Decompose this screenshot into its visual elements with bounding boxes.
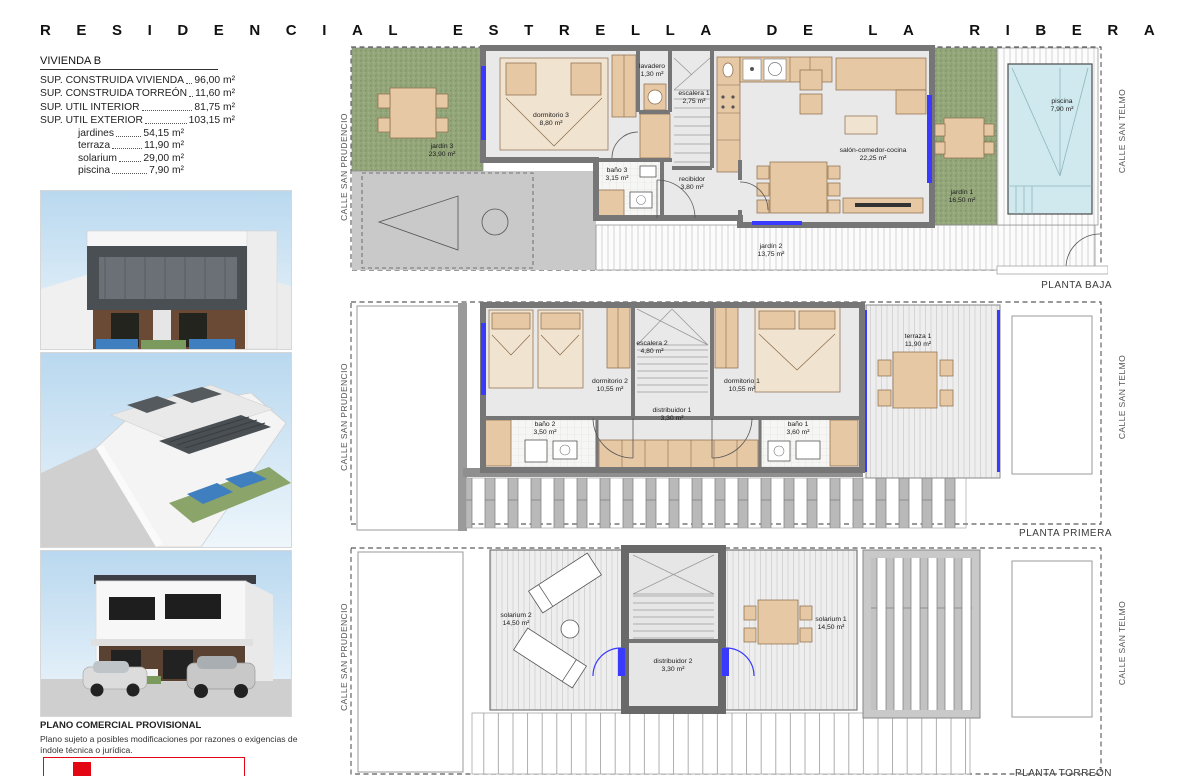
room-label-terraza-1: terraza 111,90 m² <box>905 333 932 348</box>
plan-title-primera: PLANTA PRIMERA <box>982 528 1112 539</box>
room-label-dormitorio-2: dormitorio 210,55 m² <box>592 378 628 393</box>
svg-text:16,50 m²: 16,50 m² <box>949 197 977 204</box>
plan-title-baja: PLANTA BAJA <box>982 280 1112 291</box>
svg-text:14,50 m²: 14,50 m² <box>503 620 531 627</box>
svg-text:escalera 1: escalera 1 <box>678 90 710 97</box>
room-label-solarium-2: solarium 214,50 m² <box>500 612 532 627</box>
street-label-san-prudencio-baja: CALLE SAN PRUDENCIO <box>339 107 349 227</box>
svg-text:jardín 1: jardín 1 <box>950 189 974 196</box>
svg-text:11,90 m²: 11,90 m² <box>905 341 932 348</box>
svg-text:dormitorio 3: dormitorio 3 <box>533 112 569 119</box>
render-rear-facade <box>40 550 292 717</box>
spec-row: piscina7,90 m² <box>78 164 184 177</box>
svg-text:baño 3: baño 3 <box>607 167 628 174</box>
street-label-san-telmo-primera: CALLE SAN TELMO <box>1117 337 1127 457</box>
svg-text:3,15 m²: 3,15 m² <box>605 175 629 182</box>
render-aerial-view <box>40 352 292 548</box>
svg-text:13,75 m²: 13,75 m² <box>758 251 786 258</box>
svg-text:10,55 m²: 10,55 m² <box>729 386 757 393</box>
svg-text:distribuidor 1: distribuidor 1 <box>653 407 692 414</box>
svg-text:3,80 m²: 3,80 m² <box>680 184 704 191</box>
svg-text:8,80 m²: 8,80 m² <box>539 120 563 127</box>
room-label-jardin-3: jardín 323,90 m² <box>429 143 457 158</box>
svg-text:solarium 2: solarium 2 <box>500 612 532 619</box>
plan-sheet: RESIDENCIAL ESTRELLA DE LA RIBERA VIVIEN… <box>0 0 1200 776</box>
room-label-piscina: piscina7,90 m² <box>1050 98 1074 113</box>
room-label-jardin-1: jardín 116,50 m² <box>949 189 977 204</box>
svg-text:4,80 m²: 4,80 m² <box>640 348 664 355</box>
room-label-jardin-2: jardín 213,75 m² <box>758 243 786 258</box>
spec-row: SUP. CONSTRUIDA VIVIENDA96,00 m² <box>40 72 235 86</box>
room-label-dormitorio-1: dormitorio 110,55 m² <box>724 378 760 393</box>
street-label-san-prudencio-primera: CALLE SAN PRUDENCIO <box>339 357 349 477</box>
plan-torreon-drawing: solarium 214,50 m² solarium 114,50 m² di… <box>348 545 1108 776</box>
svg-text:escalera 2: escalera 2 <box>636 340 668 347</box>
developer-logo-mark <box>73 762 91 776</box>
svg-text:baño 2: baño 2 <box>535 421 556 428</box>
svg-text:23,90 m²: 23,90 m² <box>429 151 457 158</box>
developer-logo-box <box>43 757 245 776</box>
render-front-facade <box>40 190 292 350</box>
spec-row: jardines54,15 m² <box>78 126 184 139</box>
svg-text:dormitorio 2: dormitorio 2 <box>592 378 628 385</box>
svg-text:3,60 m²: 3,60 m² <box>786 429 810 436</box>
room-label-escalera-1: escalera 12,75 m² <box>678 90 710 105</box>
footer-title: PLANO COMERCIAL PROVISIONAL <box>40 720 201 731</box>
svg-text:lavadero: lavadero <box>639 63 665 70</box>
room-label-escalera-2: escalera 24,80 m² <box>636 340 668 355</box>
room-label-bano-3: baño 33,15 m² <box>605 167 629 182</box>
spec-row: solarium29,00 m² <box>78 151 184 164</box>
footer-note-line2: índole técnica o jurídica. <box>40 745 133 755</box>
svg-text:3,30 m²: 3,30 m² <box>661 666 685 673</box>
street-label-san-telmo-baja: CALLE SAN TELMO <box>1117 71 1127 191</box>
svg-text:3,30 m²: 3,30 m² <box>660 415 684 422</box>
room-label-bano-2: baño 23,50 m² <box>533 421 557 436</box>
plan-primera-drawing: dormitorio 210,55 m² escalera 24,80 m² d… <box>348 298 1108 543</box>
svg-text:7,90 m²: 7,90 m² <box>1050 106 1074 113</box>
svg-text:22,25 m²: 22,25 m² <box>860 155 888 162</box>
svg-text:2,75 m²: 2,75 m² <box>682 98 706 105</box>
street-label-san-prudencio-torreon: CALLE SAN PRUDENCIO <box>339 597 349 717</box>
svg-text:jardín 3: jardín 3 <box>430 143 454 150</box>
svg-text:baño 1: baño 1 <box>788 421 809 428</box>
room-label-bano-1: baño 13,60 m² <box>786 421 810 436</box>
spec-row: SUP. UTIL EXTERIOR103,15 m² <box>40 113 235 127</box>
svg-text:recibidor: recibidor <box>679 176 706 183</box>
svg-text:jardín 2: jardín 2 <box>759 243 783 250</box>
spec-row: SUP. UTIL INTERIOR81,75 m² <box>40 99 235 113</box>
svg-text:solarium 1: solarium 1 <box>815 616 847 623</box>
svg-text:1,30 m²: 1,30 m² <box>640 71 664 78</box>
svg-text:distribuidor 2: distribuidor 2 <box>654 658 693 665</box>
spec-row: terraza11,90 m² <box>78 139 184 152</box>
room-label-solarium-1: solarium 114,50 m² <box>815 616 847 631</box>
svg-text:3,50 m²: 3,50 m² <box>533 429 557 436</box>
svg-text:terraza 1: terraza 1 <box>905 333 932 340</box>
room-label-recibidor: recibidor3,80 m² <box>679 176 706 191</box>
svg-text:10,55 m²: 10,55 m² <box>597 386 625 393</box>
svg-text:salón-comedor-cocina: salón-comedor-cocina <box>840 147 907 154</box>
svg-text:piscina: piscina <box>1051 98 1072 105</box>
page-title: RESIDENCIAL ESTRELLA DE LA RIBERA <box>40 22 1155 44</box>
spec-row: SUP. CONSTRUIDA TORREÓN11,60 m² <box>40 86 235 100</box>
svg-text:14,50 m²: 14,50 m² <box>818 624 846 631</box>
plan-title-torreon: PLANTA TORREÓN <box>982 768 1112 776</box>
room-label-lavadero: lavadero1,30 m² <box>639 63 665 78</box>
unit-heading: VIVIENDA B <box>40 55 218 70</box>
footer-note-line1: Plano sujeto a posibles modificaciones p… <box>40 734 298 744</box>
surface-spec-list: SUP. CONSTRUIDA VIVIENDA96,00 m² SUP. CO… <box>40 72 235 176</box>
street-label-san-telmo-torreon: CALLE SAN TELMO <box>1117 583 1127 703</box>
svg-text:dormitorio 1: dormitorio 1 <box>724 378 760 385</box>
plan-baja-drawing: jardín 323,90 m² dormitorio 38,80 m² lav… <box>348 44 1108 284</box>
